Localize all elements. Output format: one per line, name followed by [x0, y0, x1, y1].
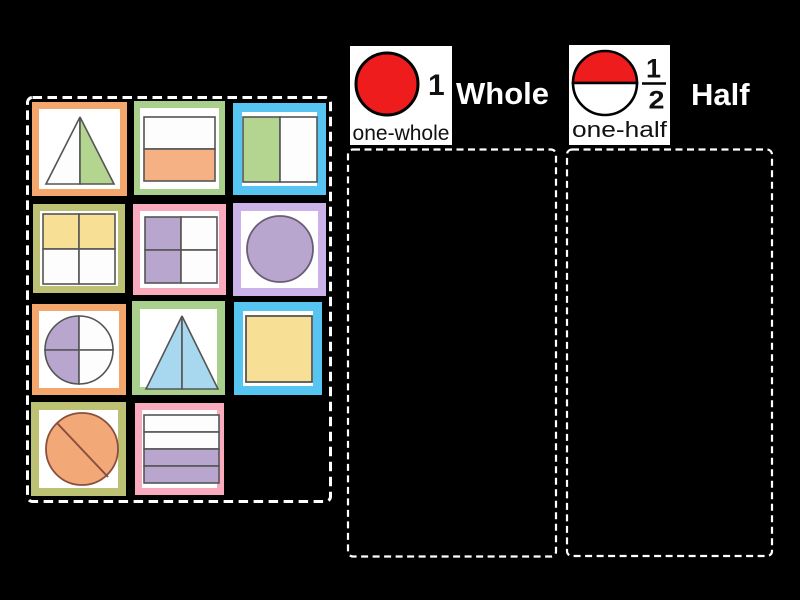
svg-text:1: 1: [646, 54, 661, 84]
svg-text:1: 1: [428, 69, 445, 102]
svg-text:2: 2: [649, 87, 665, 115]
svg-text:one-half: one-half: [572, 117, 668, 142]
svg-text:one-whole: one-whole: [353, 122, 450, 145]
